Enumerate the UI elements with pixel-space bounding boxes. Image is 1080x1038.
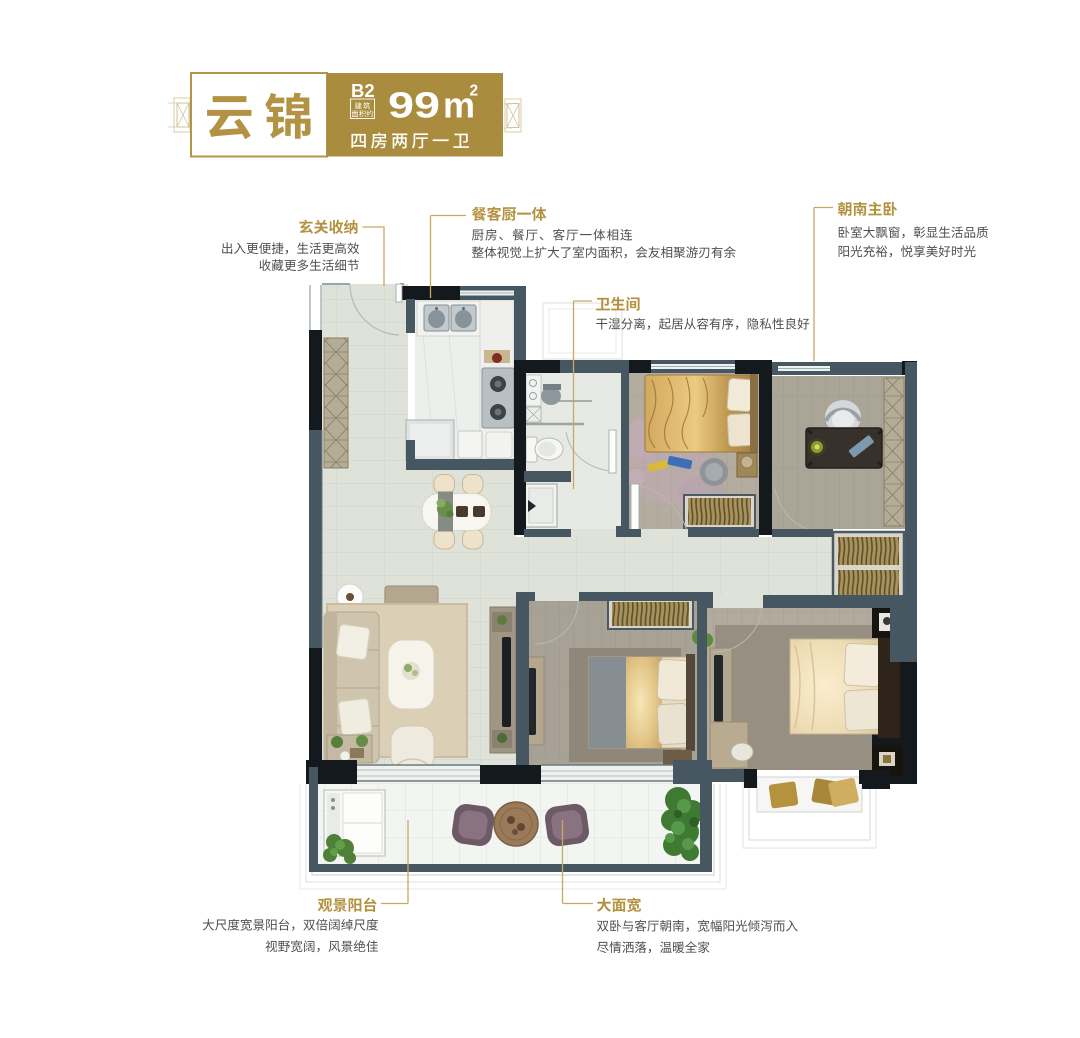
svg-text:B2: B2 xyxy=(351,80,375,101)
svg-text:99: 99 xyxy=(388,85,440,126)
svg-text:2: 2 xyxy=(470,83,479,100)
